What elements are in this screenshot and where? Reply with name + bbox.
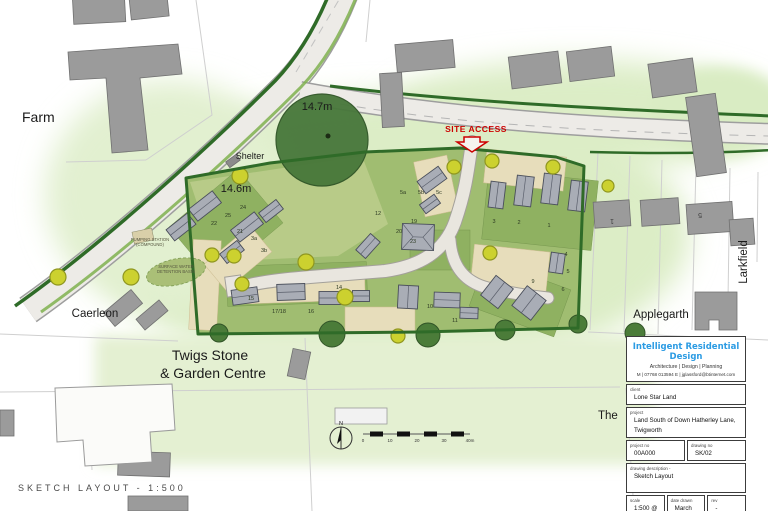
title-block-header: Intelligent Residential Design Architect… bbox=[626, 336, 746, 382]
plot-number: 14 bbox=[336, 285, 342, 291]
site-access-label: SITE ACCESS bbox=[445, 124, 507, 134]
project-no-box: project no 00A000 bbox=[626, 440, 685, 461]
plot-number: 5b bbox=[418, 190, 424, 196]
caerleon-label: Caerleon bbox=[72, 308, 119, 320]
company-tagline: Architecture | Design | Planning bbox=[629, 364, 743, 370]
pumping-station-label-2: (COMPOUND) bbox=[136, 242, 164, 247]
description-box: drawing description - Sketch Layout bbox=[626, 463, 746, 493]
plot-number: 19 bbox=[411, 219, 417, 225]
plot-number: 3b bbox=[261, 248, 267, 254]
project-no-value: 00A000 bbox=[630, 448, 681, 458]
plot-number: 9 bbox=[531, 279, 534, 285]
plot-number: 22 bbox=[211, 221, 217, 227]
applegarth-label: Applegarth bbox=[633, 309, 689, 321]
drawing-no-box: drawing no SK/02 bbox=[687, 440, 746, 461]
project-line1: Land South of Down Hatherley Lane, bbox=[630, 415, 742, 425]
sketch-layout-page: Farm Shelter 14.7m 14.6m SITE ACCESS Cae… bbox=[0, 0, 768, 511]
title-block: Intelligent Residential Design Architect… bbox=[626, 336, 746, 511]
rev-box: rev - bbox=[707, 495, 746, 511]
larkfield-label: Larkfield bbox=[738, 240, 750, 283]
plot-number: 21 bbox=[237, 229, 243, 235]
project-box: project Land South of Down Hatherley Lan… bbox=[626, 407, 746, 438]
plot-number: 5 bbox=[566, 269, 569, 275]
rev-value: - bbox=[711, 503, 742, 511]
garden-centre-label-1: Twigs Stone bbox=[172, 347, 248, 363]
scale-tick-20: 20 bbox=[414, 438, 420, 443]
plot-number: 5c bbox=[436, 190, 442, 196]
plot-number: 12 bbox=[375, 211, 381, 217]
plot-number: 3a bbox=[251, 236, 258, 242]
date-value: March 2019 bbox=[671, 503, 702, 511]
plot-number: 15 bbox=[248, 296, 254, 302]
plot-number: 24 bbox=[240, 205, 246, 211]
plot-number: 16 bbox=[308, 309, 314, 315]
company-name: Intelligent Residential Design bbox=[629, 342, 743, 362]
client-box: client Lone Star Land bbox=[626, 384, 746, 405]
drawing-footer-label: SKETCH LAYOUT - 1:500 bbox=[18, 483, 186, 493]
plot-number: 10 bbox=[427, 304, 433, 310]
drawing-no-value: SK/02 bbox=[691, 448, 742, 458]
plot-number: 23 bbox=[410, 239, 416, 245]
spot-height-147: 14.7m bbox=[302, 101, 333, 113]
spot-height-146: 14.6m bbox=[221, 183, 252, 195]
shelter-label: Shelter bbox=[236, 151, 265, 161]
plot-number: 6 bbox=[561, 287, 564, 293]
scale-box: scale 1:500 @ A2 bbox=[626, 495, 665, 511]
numbers-row: project no 00A000 drawing no SK/02 bbox=[626, 440, 746, 461]
project-line2: Twigworth bbox=[630, 425, 742, 435]
scale-date-row: scale 1:500 @ A2 date drawn March 2019 r… bbox=[626, 495, 746, 511]
plot-number: 11 bbox=[452, 318, 458, 324]
scale-tick-30: 30 bbox=[441, 438, 447, 443]
farm-label: Farm bbox=[22, 109, 55, 125]
company-contact: M | 07768 013594 E | jglassford@btintern… bbox=[629, 372, 743, 377]
plot-number: 17/18 bbox=[272, 309, 286, 315]
the-partial-label: The bbox=[598, 410, 618, 422]
garden-centre-label-2: & Garden Centre bbox=[160, 365, 266, 381]
north-label: N bbox=[339, 421, 343, 427]
plot-number: 1 bbox=[610, 217, 614, 224]
plot-number: 2 bbox=[517, 220, 520, 226]
scale-tick-40: 40m bbox=[466, 438, 475, 443]
plot-number: 4 bbox=[564, 252, 567, 258]
plot-number: 20 bbox=[396, 229, 402, 235]
description-value: Sketch Layout bbox=[630, 471, 742, 481]
plot-number: 5a bbox=[400, 190, 407, 196]
plot-number: 3 bbox=[492, 219, 495, 225]
client-value: Lone Star Land bbox=[630, 392, 742, 402]
plot-number: 1 bbox=[547, 223, 550, 229]
basin-label-2: DETENTION BASIN bbox=[157, 269, 195, 274]
date-box: date drawn March 2019 bbox=[667, 495, 706, 511]
plot-number: 25 bbox=[225, 213, 231, 219]
scale-value: 1:500 @ A2 bbox=[630, 503, 661, 511]
plot-number: 5 bbox=[698, 211, 702, 218]
scale-tick-10: 10 bbox=[387, 438, 393, 443]
